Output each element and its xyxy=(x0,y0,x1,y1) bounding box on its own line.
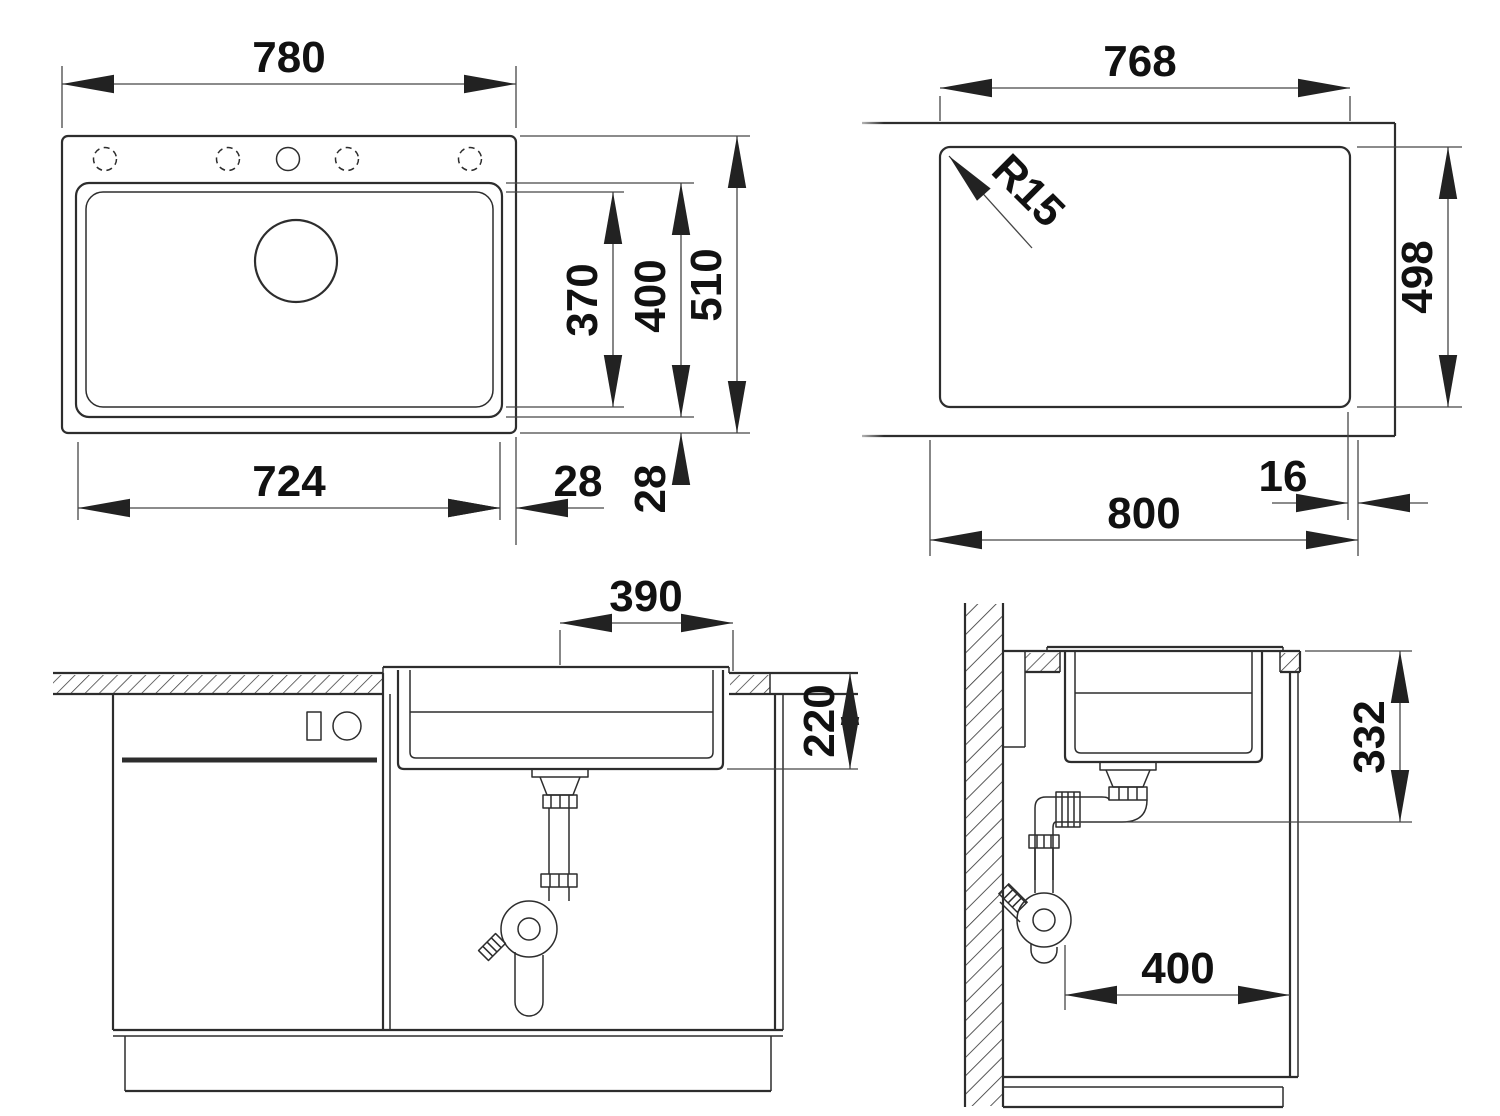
dishwasher-control xyxy=(307,712,321,740)
faucet-hole-drilled xyxy=(277,148,300,171)
dim-label-370: 370 xyxy=(558,263,607,336)
worktop-section xyxy=(53,673,858,694)
worktop-section-side xyxy=(1003,651,1300,672)
cutout-view: 768 R15 498 16 800 xyxy=(850,37,1462,556)
dim-label-390: 390 xyxy=(609,572,682,621)
worktop-outline xyxy=(850,110,1395,450)
dim-label-28-vertical: 28 xyxy=(626,465,675,514)
top-view-dimensions: 780 370 400 510 724 xyxy=(62,33,750,545)
drain-hole xyxy=(255,220,337,302)
dim-label-768: 768 xyxy=(1103,37,1176,86)
dim-label-400-side: 400 xyxy=(1141,944,1214,993)
drain-and-siphon-side xyxy=(999,762,1156,963)
dim-label-r15: R15 xyxy=(982,145,1074,237)
sink-dimension-drawing: 780 370 400 510 724 xyxy=(0,0,1500,1116)
sink-section xyxy=(383,667,729,769)
front-section-view: 390 220 xyxy=(53,572,858,1091)
dim-label-780: 780 xyxy=(252,33,325,82)
top-view: 780 370 400 510 724 xyxy=(62,33,750,545)
cutout-dimensions: 768 R15 498 16 800 xyxy=(930,37,1462,556)
side-section-view: 332 400 xyxy=(965,603,1412,1107)
base-cabinets xyxy=(113,673,783,1091)
dishwasher-knob xyxy=(333,712,361,740)
sink-outline xyxy=(62,136,516,433)
dim-label-800: 800 xyxy=(1107,489,1180,538)
wall-section xyxy=(965,603,1025,1107)
drain-and-siphon xyxy=(479,769,588,1016)
dim-label-16: 16 xyxy=(1259,452,1308,501)
faucet-holes xyxy=(94,148,482,171)
dim-label-332: 332 xyxy=(1345,700,1394,773)
dim-label-220: 220 xyxy=(795,684,844,757)
dim-label-28-horizontal: 28 xyxy=(554,457,603,506)
dim-label-724: 724 xyxy=(252,457,326,506)
cabinet-side xyxy=(1003,672,1298,1107)
side-section-dimensions: 332 400 xyxy=(1065,651,1412,1010)
front-section-dimensions: 390 220 xyxy=(560,572,858,769)
technical-drawing-page: 780 370 400 510 724 xyxy=(0,0,1500,1116)
dim-label-498: 498 xyxy=(1393,240,1442,313)
dim-label-510: 510 xyxy=(682,248,731,321)
dim-label-400: 400 xyxy=(626,259,675,332)
sink-section-side xyxy=(1047,647,1283,762)
